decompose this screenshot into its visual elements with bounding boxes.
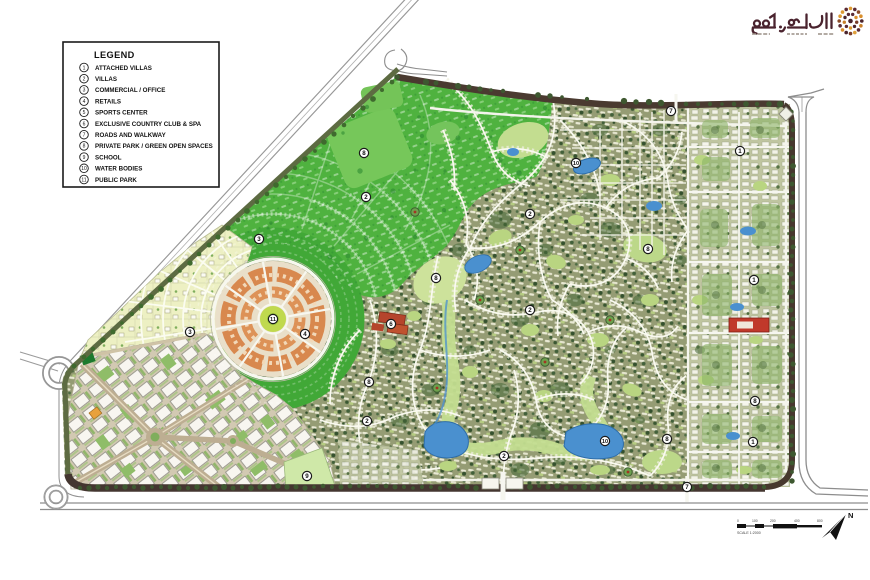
svg-text:7: 7 [669, 108, 673, 115]
svg-text:11: 11 [270, 317, 276, 323]
svg-text:8: 8 [83, 144, 86, 150]
svg-text:PUBLIC PARK: PUBLIC PARK [95, 177, 137, 184]
svg-text:6: 6 [83, 121, 86, 127]
svg-text:10: 10 [573, 161, 579, 167]
svg-text:2: 2 [528, 211, 532, 218]
svg-text:3: 3 [83, 88, 86, 94]
svg-text:800: 800 [817, 519, 823, 523]
svg-text:8: 8 [367, 379, 371, 386]
svg-text:2: 2 [364, 194, 368, 201]
svg-text:RETAILS: RETAILS [95, 98, 121, 105]
svg-text:5: 5 [83, 110, 86, 116]
svg-text:1: 1 [751, 439, 755, 446]
svg-text:11: 11 [81, 177, 86, 183]
svg-text:8: 8 [434, 275, 438, 282]
svg-text:9: 9 [83, 155, 86, 161]
svg-text:8: 8 [753, 398, 757, 405]
svg-text:LEGEND: LEGEND [94, 50, 135, 60]
svg-text:3: 3 [257, 236, 261, 243]
svg-text:400: 400 [794, 519, 800, 523]
svg-text:SCALE 1:2000: SCALE 1:2000 [737, 531, 761, 535]
svg-text:8: 8 [362, 150, 366, 157]
svg-text:COMMERCIAL / OFFICE: COMMERCIAL / OFFICE [95, 87, 165, 94]
svg-text:2: 2 [83, 77, 86, 83]
svg-text:7: 7 [83, 133, 86, 139]
svg-text:EXCLUSIVE COUNTRY CLUB & SPA: EXCLUSIVE COUNTRY CLUB & SPA [95, 121, 202, 128]
svg-text:200: 200 [770, 519, 776, 523]
svg-text:10: 10 [602, 439, 608, 445]
svg-text:VILLAS: VILLAS [95, 76, 117, 83]
svg-text:6: 6 [389, 321, 393, 328]
svg-text:2: 2 [528, 307, 532, 314]
svg-text:WATER BODIES: WATER BODIES [95, 166, 142, 173]
svg-text:ATTACHED VILLAS: ATTACHED VILLAS [95, 65, 152, 72]
svg-text:100: 100 [752, 519, 758, 523]
svg-text:2: 2 [365, 418, 369, 425]
svg-text:8: 8 [646, 246, 650, 253]
svg-text:1: 1 [752, 277, 756, 284]
svg-text:10: 10 [81, 166, 87, 172]
svg-text:8: 8 [665, 436, 669, 443]
svg-text:7: 7 [685, 484, 689, 491]
svg-text:3: 3 [188, 329, 192, 336]
svg-text:4: 4 [303, 331, 307, 338]
svg-text:SCHOOL: SCHOOL [95, 154, 122, 161]
svg-text:9: 9 [305, 473, 309, 480]
svg-text:PRIVATE PARK / GREEN OPEN SPAC: PRIVATE PARK / GREEN OPEN SPACES [95, 143, 213, 150]
svg-text:N: N [848, 511, 853, 520]
svg-text:1: 1 [83, 65, 86, 71]
svg-text:2: 2 [502, 453, 506, 460]
svg-text:4: 4 [83, 99, 86, 105]
svg-text:ROADS AND WALKWAY: ROADS AND WALKWAY [95, 132, 167, 139]
svg-text:SPORTS CENTER: SPORTS CENTER [95, 110, 148, 117]
svg-text:1: 1 [738, 148, 742, 155]
svg-text:0: 0 [737, 519, 739, 523]
